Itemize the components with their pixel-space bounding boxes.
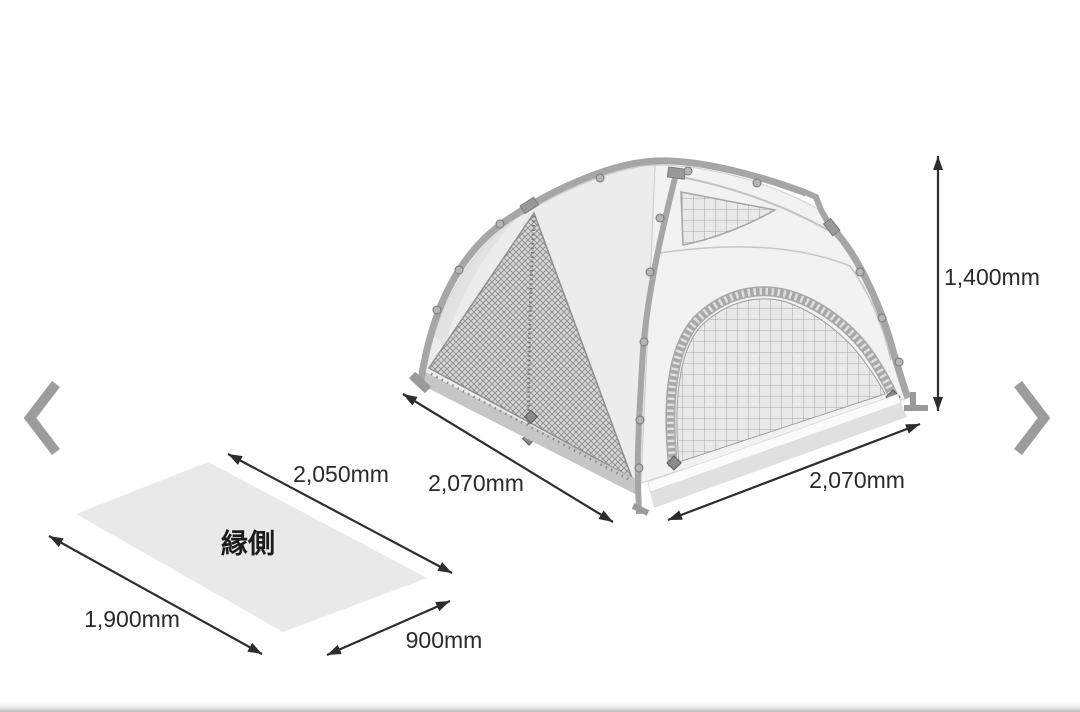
sheet-name-label: 縁側 — [221, 528, 275, 559]
chevron-right-icon — [1012, 378, 1052, 458]
previous-image-button[interactable] — [14, 372, 70, 464]
next-image-button[interactable] — [1004, 372, 1060, 464]
tent-width-left-label: 2,070mm — [428, 470, 524, 496]
sheet-right-edge-label: 900mm — [406, 627, 483, 653]
product-image-viewer: 縁側 2,070mm 2,070mm 1,400mm 2,050mm 1,900… — [0, 0, 1080, 712]
tent-illustration — [412, 161, 928, 514]
center-pole-foot — [633, 506, 648, 513]
sheet-left-edge-label: 1,900mm — [84, 606, 180, 632]
sheet-top-edge-label: 2,050mm — [293, 461, 389, 487]
tent-width-right-label: 2,070mm — [809, 467, 905, 493]
tent-height-label: 1,400mm — [944, 264, 1040, 290]
chevron-left-icon — [22, 378, 62, 458]
viewer-bottom-edge — [0, 701, 1080, 712]
product-dimension-diagram: 縁側 2,070mm 2,070mm 1,400mm 2,050mm 1,900… — [0, 0, 1080, 712]
